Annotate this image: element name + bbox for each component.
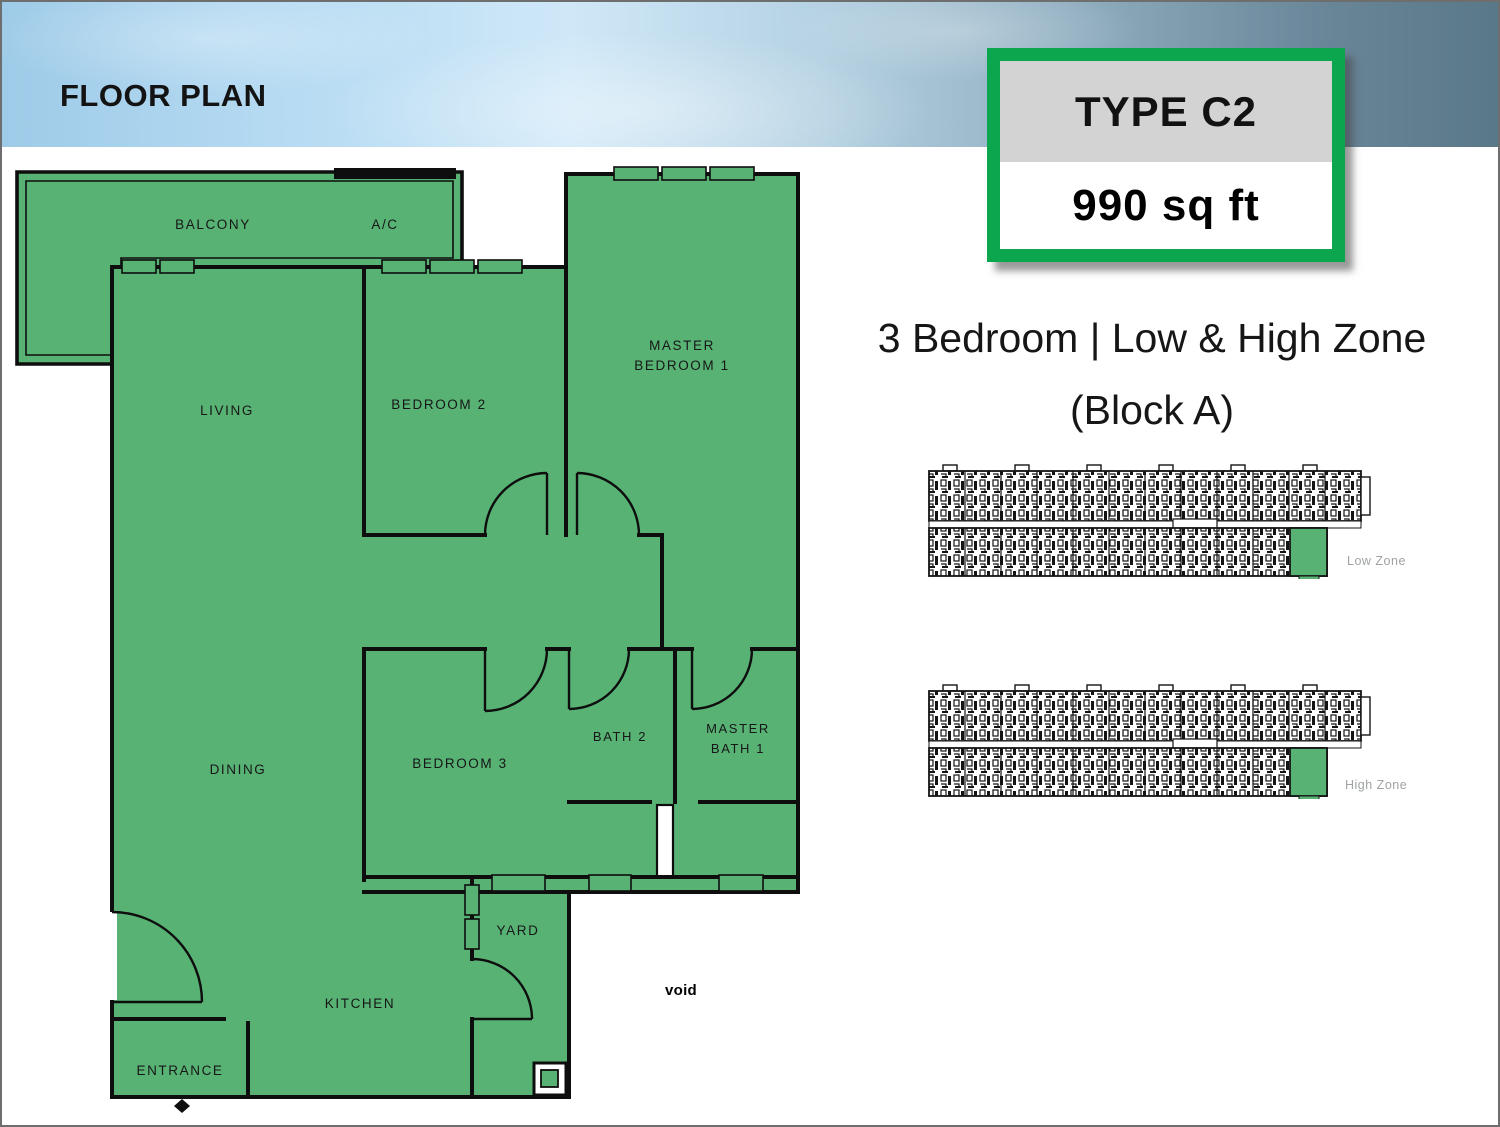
window-living (122, 260, 156, 273)
headline: 3 Bedroom | Low & High Zone (Block A) (812, 302, 1492, 446)
window-bedroom2 (430, 260, 474, 273)
page-title: FLOOR PLAN (60, 78, 267, 114)
area-label: 990 sq ft (1000, 162, 1332, 249)
window-bedroom2 (478, 260, 522, 273)
unit-fill (112, 174, 798, 1097)
room-label-living: LIVING (200, 403, 254, 418)
window-bottom (492, 875, 545, 891)
room-label-master-bath-2: BATH 1 (711, 741, 765, 756)
room-label-balcony: BALCONY (175, 217, 251, 232)
balcony-notch (334, 168, 456, 179)
room-label-master-bath-1: MASTER (706, 721, 770, 736)
slide: FLOOR PLAN TYPE C2 990 sq ft 3 Bedroom |… (0, 0, 1500, 1127)
window-master (710, 167, 754, 180)
kitchen-column-inner (541, 1070, 558, 1087)
key-plan-drawing (929, 465, 1370, 579)
floor-plan: BALCONY A/C LIVING BEDROOM 2 MASTER BEDR… (10, 165, 820, 1125)
headline-line2: (Block A) (812, 374, 1492, 446)
duct-shaft (657, 805, 673, 877)
room-label-bedroom3: BEDROOM 3 (412, 756, 507, 771)
headline-line1: 3 Bedroom | Low & High Zone (812, 302, 1492, 374)
room-label-entrance: ENTRANCE (136, 1063, 223, 1078)
high-zone-label: High Zone (1345, 778, 1407, 792)
highlighted-unit-low (1290, 528, 1327, 576)
room-label-bedroom2: BEDROOM 2 (391, 397, 486, 412)
room-label-bath2: BATH 2 (593, 729, 647, 744)
window-bottom (719, 875, 763, 891)
room-label-master-bedroom-2: BEDROOM 1 (634, 358, 729, 373)
window-bedroom2 (382, 260, 426, 273)
void-label: void (665, 982, 697, 999)
entrance-door-gap (107, 912, 117, 1000)
entry-marker (174, 1099, 190, 1113)
type-label: TYPE C2 (1000, 61, 1332, 162)
window-yard (465, 919, 479, 949)
type-badge: TYPE C2 990 sq ft (987, 48, 1345, 262)
highlighted-unit-high (1290, 748, 1327, 796)
key-plan-drawing (929, 685, 1370, 799)
low-zone-label: Low Zone (1347, 554, 1406, 568)
room-label-master-bedroom-1: MASTER (649, 338, 715, 353)
window-living (160, 260, 194, 273)
window-master (662, 167, 706, 180)
window-bottom (589, 875, 631, 891)
room-label-ac: A/C (371, 217, 398, 232)
key-plan-high-zone (927, 684, 1372, 799)
key-plan-low-zone (927, 464, 1372, 579)
window-yard (465, 885, 479, 915)
window-master (614, 167, 658, 180)
room-label-kitchen: KITCHEN (325, 996, 395, 1011)
room-label-yard: YARD (497, 923, 540, 938)
room-label-dining: DINING (210, 762, 267, 777)
